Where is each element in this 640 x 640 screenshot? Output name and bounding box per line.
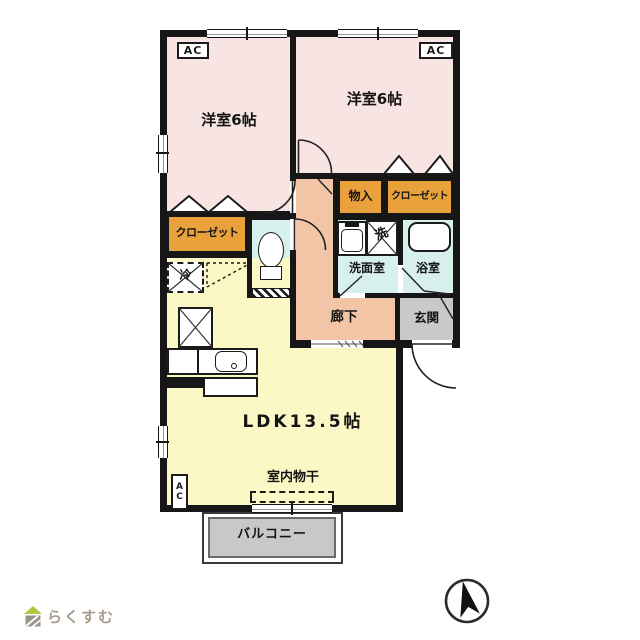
door-arc-bedroom2 (299, 140, 332, 173)
room-storage-label: 物入 (338, 190, 383, 204)
north-arrow-icon (453, 579, 480, 617)
closet-door-triangles (170, 156, 453, 212)
brand-text: らくすむ (47, 606, 115, 627)
room-bedroom-1-label: 洋室6帖 (167, 112, 291, 129)
house-icon (24, 606, 42, 627)
door-arc-entrance (412, 344, 456, 388)
ac-label: AC (184, 44, 203, 57)
brand-logo: らくすむ (24, 606, 115, 627)
room-bathroom-label: 浴室 (403, 262, 453, 276)
door-arc-bedroom1 (263, 181, 295, 213)
dotted-space-mark (207, 263, 249, 287)
ac-label: AC (427, 44, 446, 57)
room-closet-right-label: クローゼット (385, 191, 454, 203)
ac-unit-ldk: AC (171, 474, 188, 510)
ac-unit-bedroom1: AC (177, 42, 209, 59)
compass-icon (446, 579, 488, 622)
ac-label: AC (175, 482, 185, 502)
hallway-label: 廊下 (298, 310, 390, 326)
sliding-door-hatch (311, 341, 364, 347)
balcony-label: バルコニー (208, 528, 336, 543)
fridge-label: 冷 (167, 269, 204, 283)
door-arc-toilet (295, 219, 326, 250)
door-washroom (340, 276, 362, 296)
ldk-label: LDK13.5帖 (183, 413, 423, 433)
floor-plan: AC AC AC 洋室6帖 洋室6帖 物入 クローゼット クローゼット 洗面室 … (0, 0, 640, 640)
room-washroom-label: 洗面室 (334, 262, 400, 276)
x-marks (168, 221, 397, 347)
ac-unit-bedroom2: AC (419, 42, 453, 59)
room-closet-left-label: クローゼット (166, 227, 248, 240)
room-bedroom-2-label: 洋室6帖 (296, 91, 453, 108)
storage-door-mark (318, 179, 332, 194)
entrance-label: 玄関 (400, 311, 453, 325)
indoor-drying-label: 室内物干 (240, 471, 346, 486)
